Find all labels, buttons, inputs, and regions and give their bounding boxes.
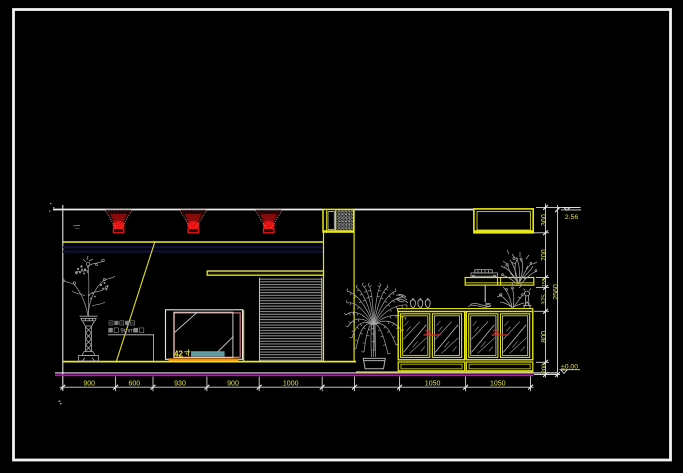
svg-text:42: 42 xyxy=(174,349,183,358)
svg-text:360: 360 xyxy=(541,214,548,226)
svg-text:375: 375 xyxy=(541,294,548,305)
svg-text:2.56: 2.56 xyxy=(565,214,578,221)
svg-text:900: 900 xyxy=(83,381,95,388)
svg-text:1000: 1000 xyxy=(283,381,299,388)
svg-text:930: 930 xyxy=(174,381,186,388)
svg-text:9mm: 9mm xyxy=(120,328,134,335)
svg-text:155: 155 xyxy=(542,278,548,287)
svg-text:1050: 1050 xyxy=(425,381,441,388)
svg-text:600: 600 xyxy=(128,381,140,388)
svg-text:800: 800 xyxy=(541,331,548,343)
svg-text:2560: 2560 xyxy=(553,284,560,300)
svg-text:900: 900 xyxy=(227,381,239,388)
svg-text:700: 700 xyxy=(541,249,548,261)
svg-text:1050: 1050 xyxy=(490,381,506,388)
svg-text:200: 200 xyxy=(541,363,548,374)
